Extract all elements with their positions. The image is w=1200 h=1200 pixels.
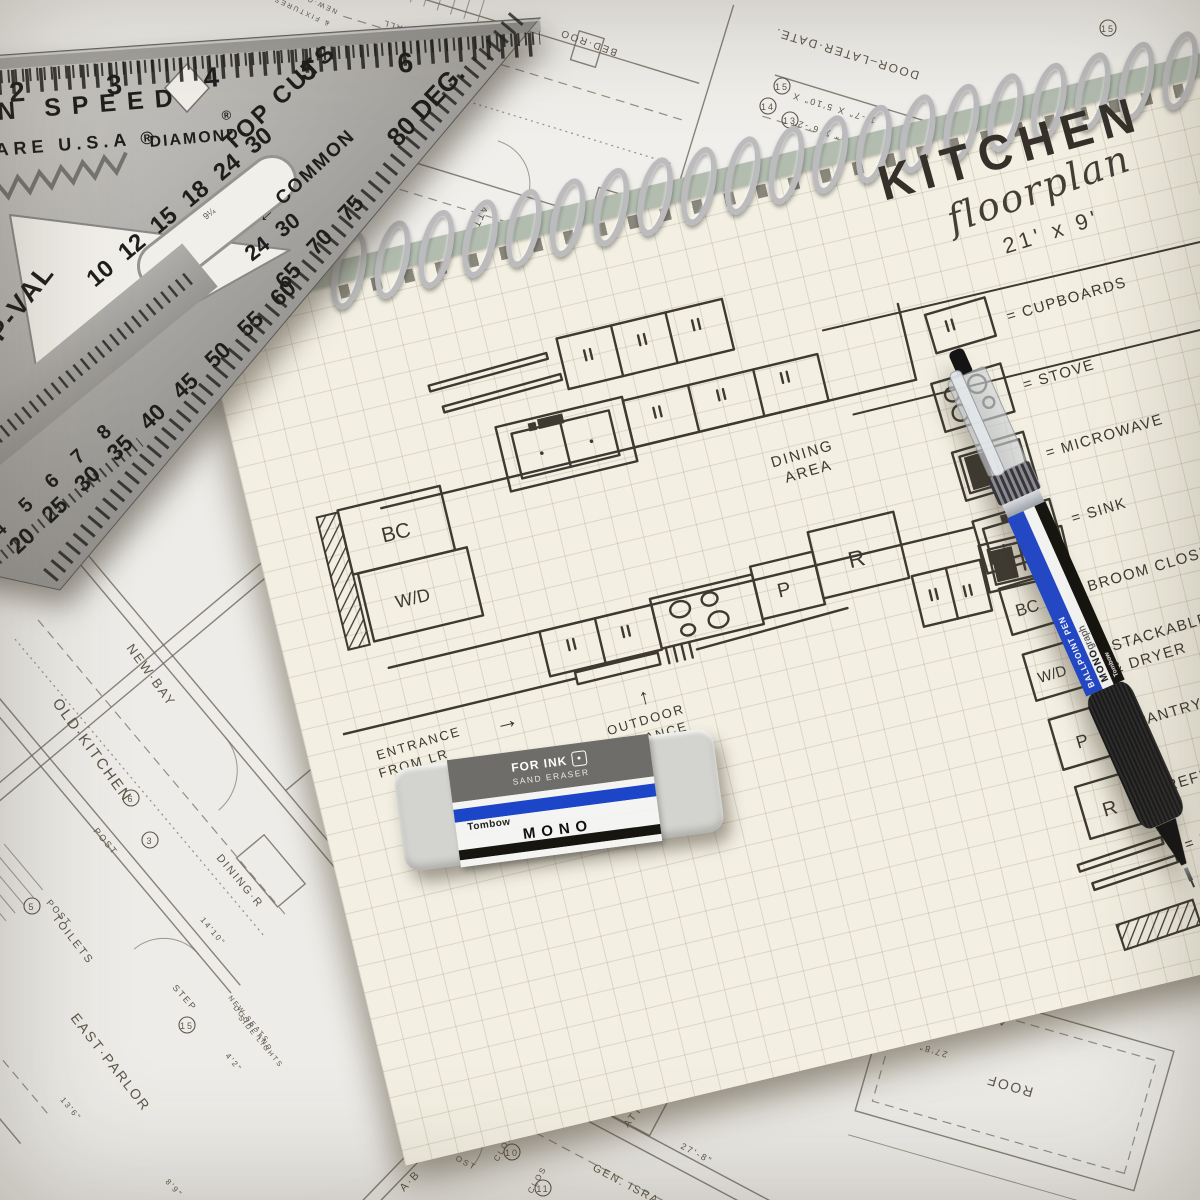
legend-r-symbol: R (1100, 796, 1120, 821)
legend-microwave-label: = MICROWAVE (1044, 411, 1166, 462)
ink-drop-icon: ● (571, 750, 588, 767)
plan-stove (650, 574, 764, 648)
plan-entrance-arrow: → (492, 705, 522, 737)
legend-broom-label: = BROOM CLOSET (1070, 539, 1200, 599)
plan-outdoor-arrow: ↑ (636, 683, 653, 710)
legend-cupboards-label: = CUPBOARDS (1005, 274, 1129, 326)
circled-15c: 15 (1101, 24, 1115, 34)
plan-r-label: R (845, 544, 867, 573)
plan-p-label: P (775, 578, 793, 603)
legend-wd-symbol: W/D (1036, 662, 1069, 687)
legend-bc-symbol: BC (1013, 596, 1041, 621)
circled-6: 6 (127, 794, 134, 804)
legend-sink-label: = SINK (1069, 495, 1128, 527)
plan-pantry-fridge: P R (745, 512, 910, 619)
legend-stove-label: = STOVE (1021, 356, 1097, 393)
ruler-registered-mark: ® (221, 107, 232, 123)
circled-14: 14 (761, 102, 775, 112)
circled-15: 15 (180, 1021, 194, 1031)
legend-p-symbol: P (1074, 730, 1091, 753)
circled-3: 3 (146, 836, 153, 846)
circled-15b: 15 (775, 82, 789, 92)
pen-nib (1190, 880, 1195, 887)
speed-square-ruler: 2 3 4 5 6 N SPEED ARE U.S.A ® ® DIAMOND … (0, 0, 600, 670)
circled-5: 5 (28, 902, 35, 912)
